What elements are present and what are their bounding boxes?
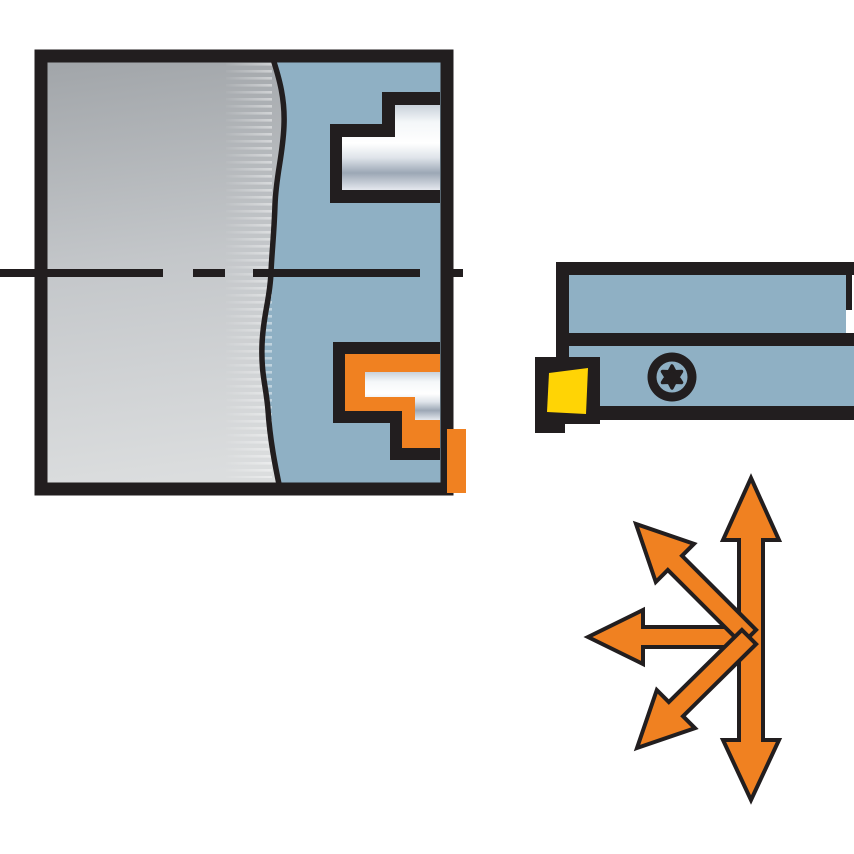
bar-bottom-edge	[598, 406, 854, 420]
cutting-insert	[547, 368, 588, 414]
corner-tab	[447, 429, 466, 493]
bar-lower-body	[569, 346, 854, 408]
workpiece-section-figure	[0, 56, 466, 493]
bar-divider-edge	[560, 333, 854, 346]
bar-right-step-edge	[846, 262, 852, 310]
feed-arrows	[588, 478, 779, 800]
machining-application-illustration	[0, 0, 854, 854]
boring-bar-figure	[535, 262, 854, 433]
bar-top-edge	[556, 262, 854, 275]
bar-upper-body	[569, 274, 846, 336]
illustration-canvas	[0, 0, 854, 854]
torx-screw-icon	[648, 353, 697, 402]
bar-right-notch	[846, 310, 854, 336]
bar-left-edge	[556, 262, 569, 365]
